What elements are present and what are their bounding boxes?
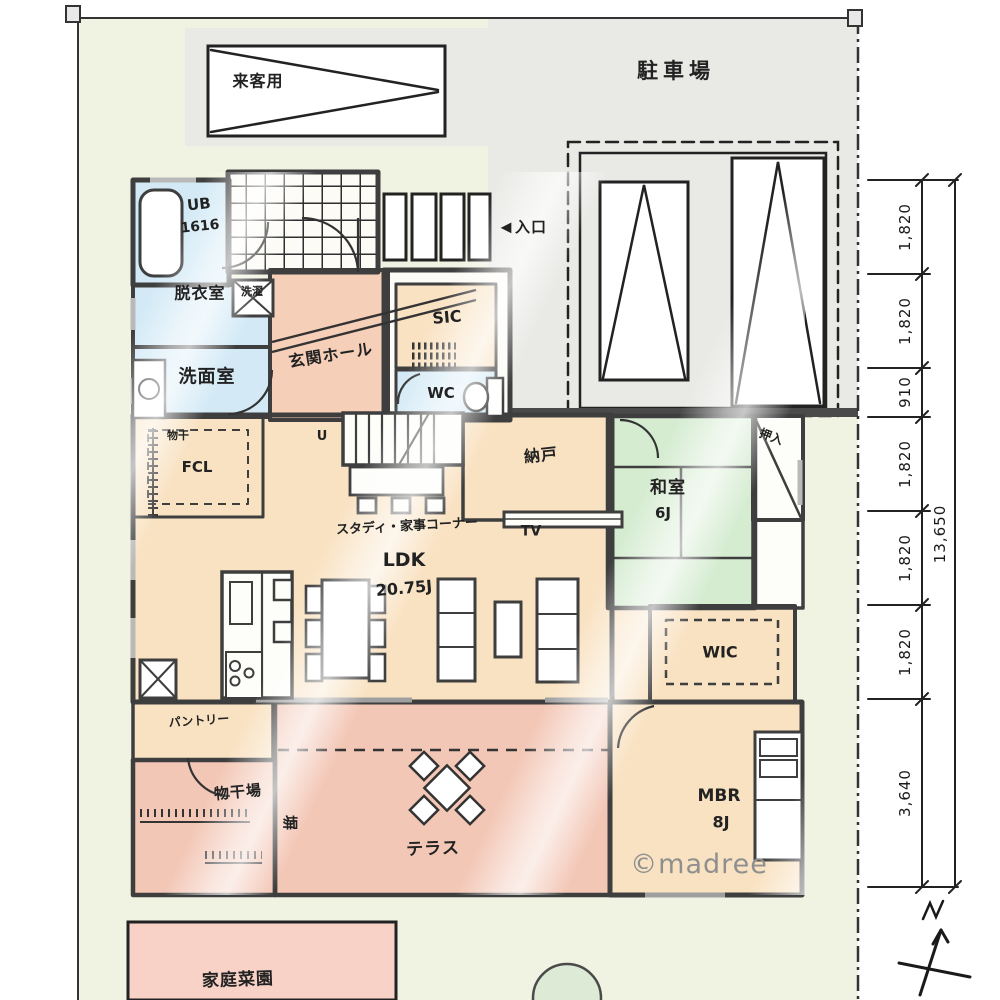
dim-segment-7: 3,640: [898, 769, 914, 817]
bathtub: [140, 190, 182, 276]
dressing-room-label: 脱衣室: [174, 286, 225, 303]
japanese-room-size-label: 6J: [655, 506, 671, 522]
washer-label: 洗濯: [241, 286, 263, 298]
stairs: [343, 413, 463, 465]
storage-label: 納戸: [523, 446, 559, 466]
dim-total: 13,650: [933, 505, 949, 564]
north-arrow: [899, 901, 970, 995]
floor-plan-canvas: 来客用 駐車場 ◀ 入口 UB 1616 脱衣室 洗濯 洗面室 FCL 物干 玄…: [0, 0, 1000, 1000]
visitor-parking-label: 来客用: [232, 74, 283, 91]
bath-label: UB: [186, 196, 211, 214]
master-bedroom-size-label: 8J: [712, 815, 729, 832]
kitchen: [222, 572, 292, 698]
dim-segment-3: 910: [898, 376, 914, 408]
master-bedroom-label: MBR: [698, 788, 741, 806]
drying-pole-label: 物干: [167, 430, 189, 442]
garden-label: 家庭菜園: [202, 971, 275, 991]
dim-segment-4: 1,820: [898, 440, 914, 488]
entrance-arrow-icon: ◀: [501, 221, 512, 236]
vanity: [133, 360, 165, 418]
floor-plan-drawing: [0, 0, 1000, 1000]
dim-segment-5: 1,820: [898, 534, 914, 582]
parking-lot-label: 駐車場: [637, 60, 715, 82]
walk-in-closet-label: WIC: [702, 645, 737, 662]
watermark: ©madree: [630, 851, 768, 879]
tv-label: TV: [521, 525, 541, 540]
entrance-label: 入口: [515, 220, 547, 236]
dim-segment-6: 1,820: [898, 628, 914, 676]
approach-tiles: [384, 194, 490, 260]
dim-segment-1: 1,820: [898, 203, 914, 251]
family-closet-label: FCL: [182, 460, 213, 476]
bed: [755, 732, 802, 860]
refrigerator: [140, 660, 176, 698]
stairs-up-label: U: [317, 430, 328, 444]
japanese-room-label: 和室: [650, 480, 686, 498]
shoe-closet-label: SIC: [432, 308, 463, 327]
dining-set: [306, 580, 385, 681]
washroom-label: 洗面室: [179, 369, 236, 388]
visitor-parking-space: [208, 46, 445, 136]
fence-label: 塀: [281, 815, 297, 831]
toilet-label: WC: [427, 386, 455, 402]
ldk-label: LDK: [383, 551, 426, 571]
terrace-label: テラス: [406, 840, 460, 860]
study-desk: [350, 467, 444, 513]
dim-segment-2: 1,820: [898, 297, 914, 345]
